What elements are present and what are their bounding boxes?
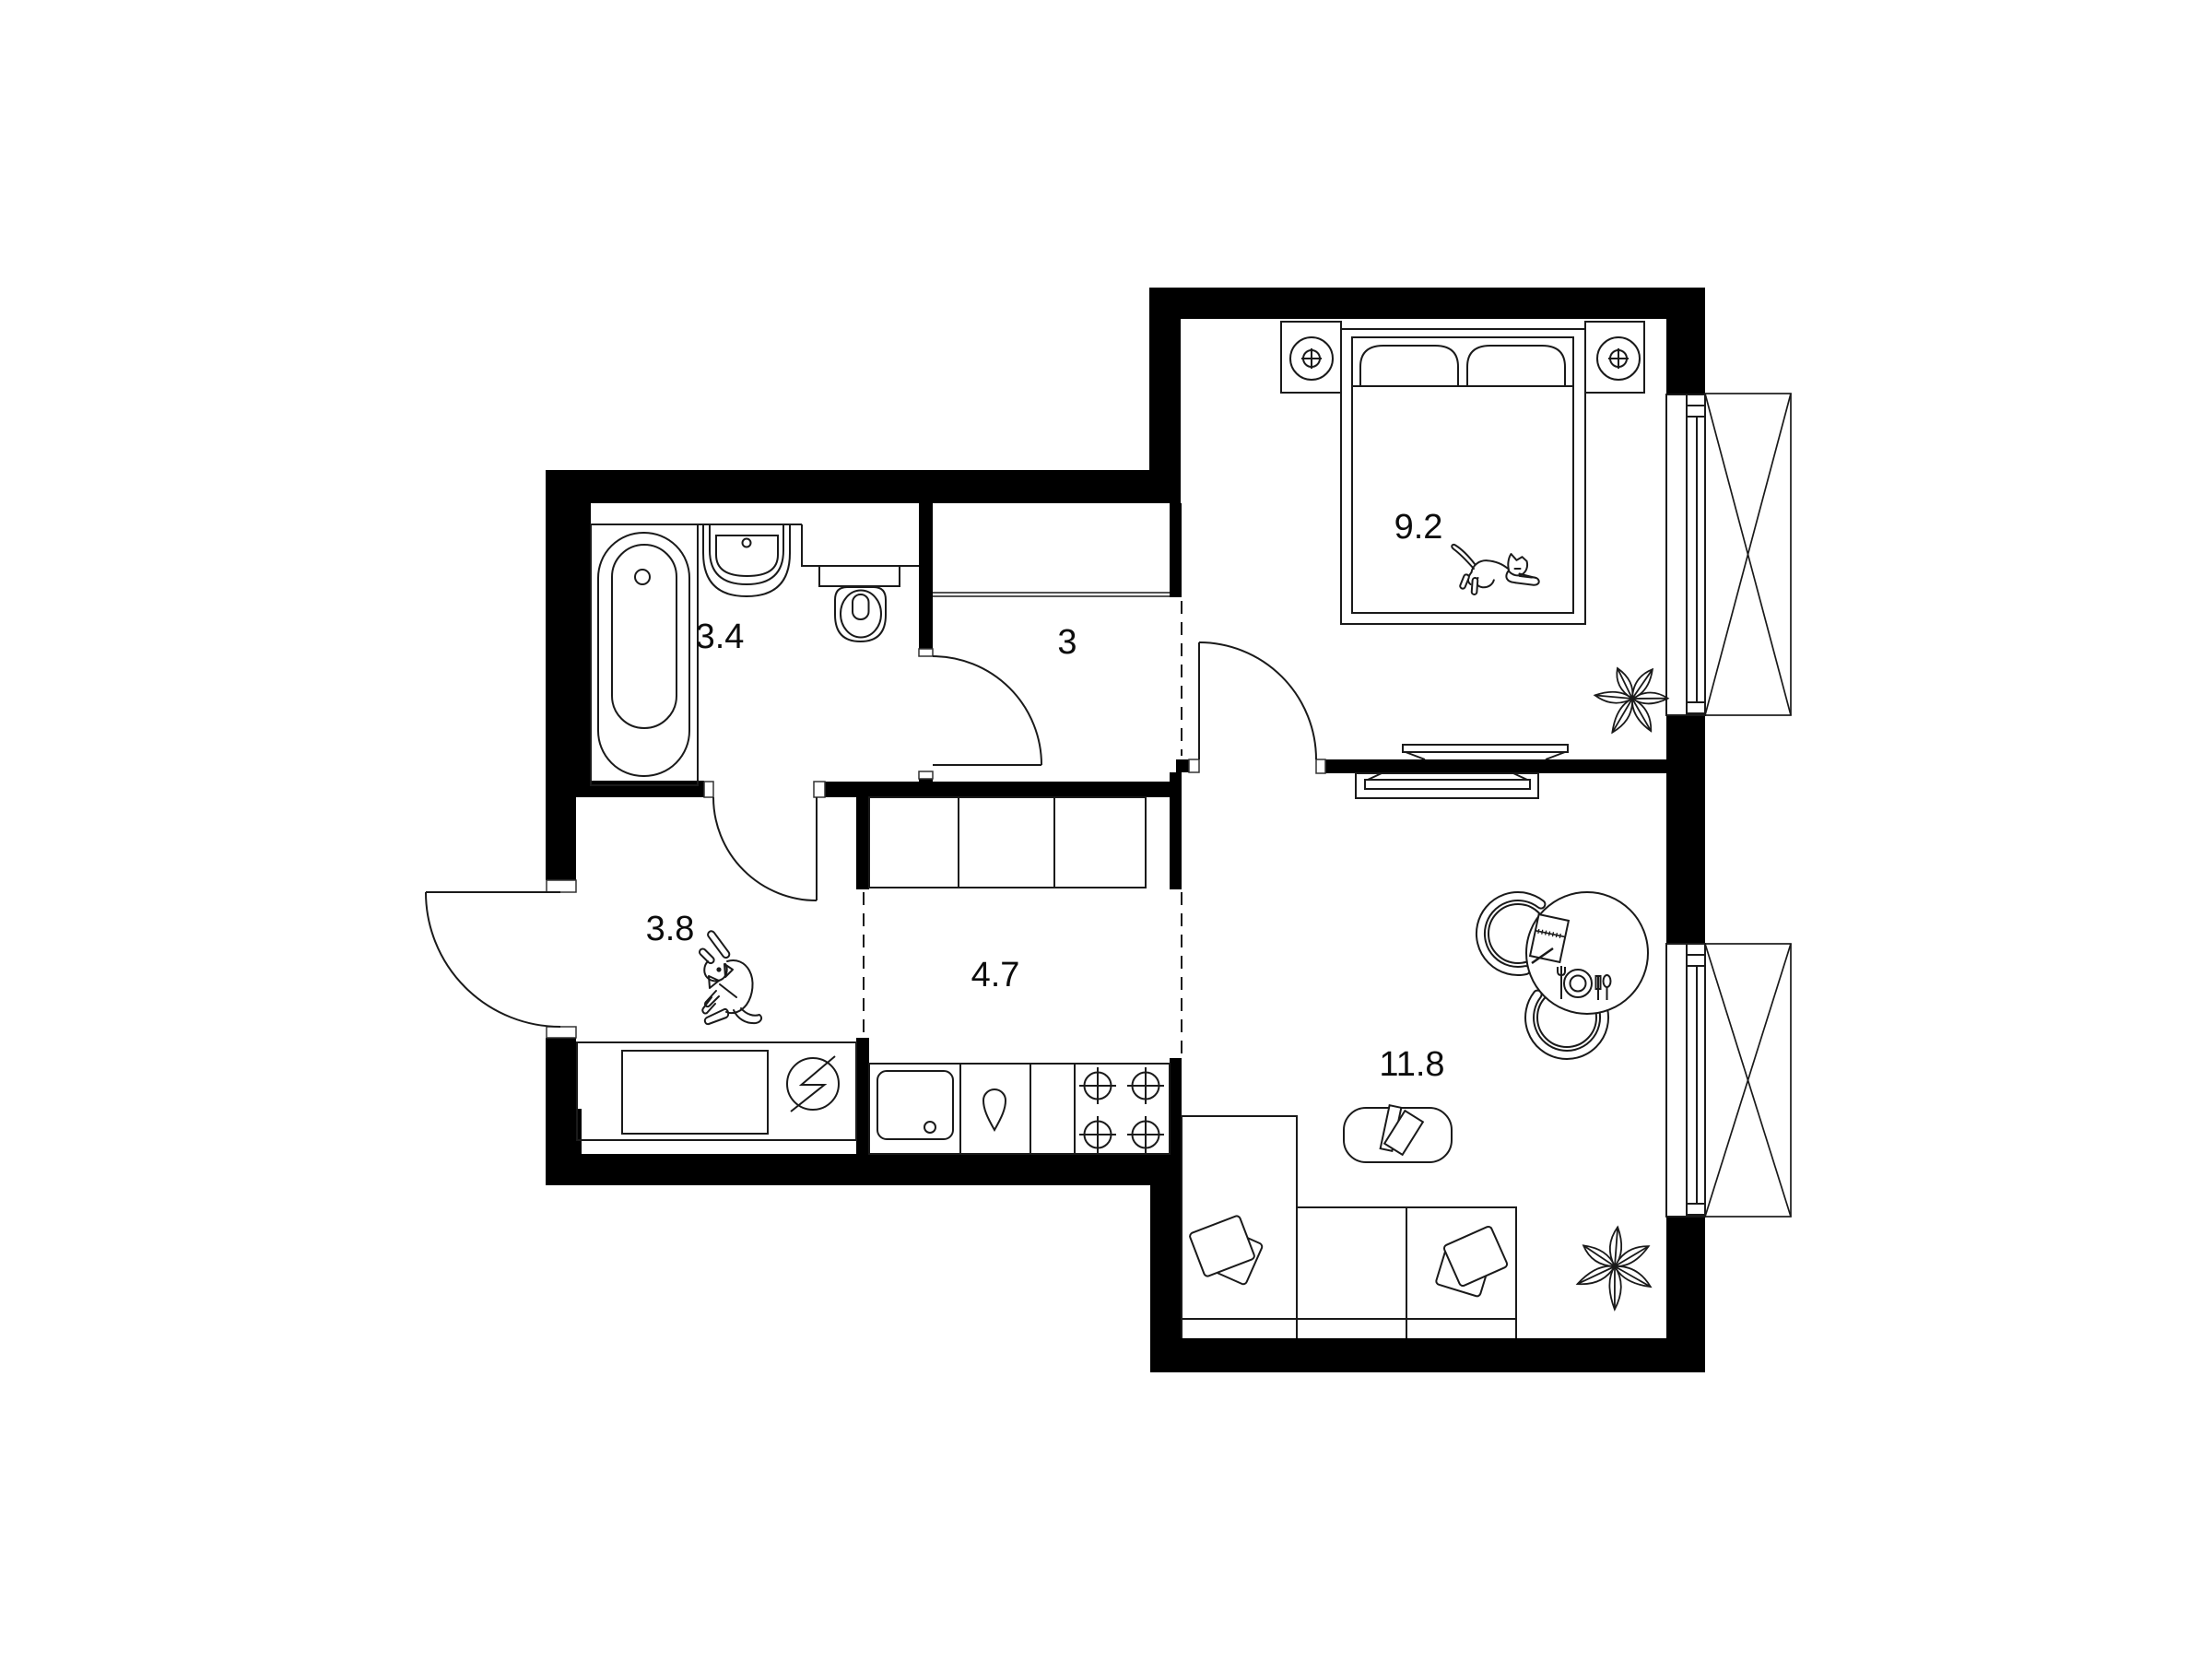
svg-text:4.7: 4.7 (971, 956, 1020, 994)
svg-text:3: 3 (1057, 623, 1077, 662)
svg-text:3.8: 3.8 (646, 910, 695, 948)
svg-text:3.4: 3.4 (696, 618, 745, 656)
svg-text:9.2: 9.2 (1394, 508, 1443, 547)
svg-text:11.8: 11.8 (1379, 1045, 1444, 1084)
